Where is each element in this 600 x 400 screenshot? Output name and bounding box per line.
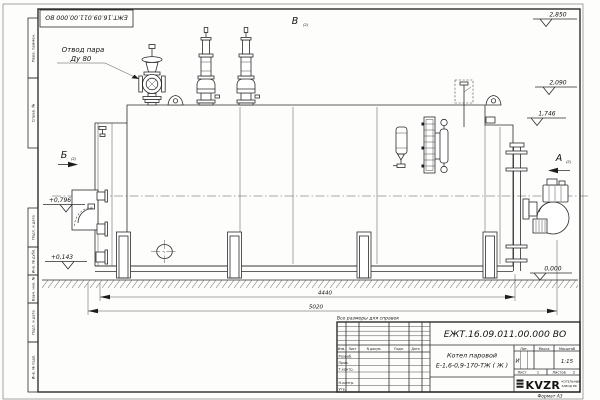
lifting-lug [486, 96, 501, 106]
row-nkontr: Н.контр. [339, 381, 355, 385]
title-doc-number: ЕЖТ.16.09.011.00.000 ВО [444, 329, 567, 340]
front-plate-fittings [96, 127, 108, 265]
col-sign: Подп. [394, 347, 404, 351]
margin-label-inv-dubl: Инв. № дубл. [32, 249, 36, 274]
view-arrow-a [548, 168, 558, 173]
row-tkontr: Т.контр. [338, 368, 354, 372]
sheets-label: Листов [552, 371, 565, 375]
lit-value: И [515, 359, 519, 365]
drum-step-stub [486, 117, 495, 123]
reference-note: Все размеры для справок [337, 316, 400, 322]
callout-leader-arrow [132, 75, 140, 79]
margin-label-vzam-inv: Взам. инв. № [32, 277, 36, 302]
row-razrab: Разраб. [339, 354, 353, 358]
view-label-a: А (2) [548, 153, 572, 173]
boiler-side-view [72, 28, 569, 279]
view-sheet-ref-a: (2) [566, 160, 572, 164]
logo-sub1: КОТЕЛЬНЫЙ [562, 379, 581, 384]
mass-header: Масса [539, 347, 550, 351]
burner-fan-unit [523, 179, 569, 234]
scale-value: 1:15 [561, 359, 574, 365]
sheet-num: 1 [537, 371, 539, 375]
margin-label-podp-data-1: Подп. и дата [32, 215, 36, 239]
view-arrow-b [68, 162, 78, 167]
margin-label-sprav-no: Справ. № [31, 104, 36, 123]
col-izm: Изм. [338, 347, 346, 351]
row-utv: Утв. [339, 388, 346, 392]
elevation-2850: 2,850 [533, 12, 577, 27]
manhole [151, 240, 178, 263]
lit-header: Лит. [520, 347, 528, 351]
format-note: Формат А3 [537, 394, 562, 400]
boiler-shell-outline [95, 105, 513, 266]
ground-line [42, 280, 578, 288]
sheets-num: 2 [573, 371, 575, 375]
product-model: Е-1,6-0,9-170-ТЖ ( Ж ) [436, 363, 508, 370]
steam-outlet-callout: Отвод пара Ду 80 [57, 46, 139, 79]
burner-front-door [72, 190, 98, 230]
logo-text: KVZR [526, 379, 561, 392]
scale-header: Масштаб [559, 347, 575, 351]
drawing-sheet: Перв. примен. Справ. № Подп. и дата Инв.… [0, 0, 600, 400]
water-level-gauge [422, 117, 449, 173]
boiler-general-view-drawing: Перв. примен. Справ. № Подп. и дата Инв.… [0, 0, 600, 400]
margin-label-podp-data-2: Подп. и дата [32, 310, 36, 334]
sample-cooler-vessel [393, 127, 407, 168]
view-letter-a: А [555, 153, 563, 164]
col-list: Лист [348, 347, 356, 351]
lifting-lug [168, 96, 183, 106]
view-label-b: Б (2) [58, 150, 78, 167]
elevation-0143-value: +0,143 [51, 254, 73, 261]
dimension-5020-value: 5020 [309, 305, 324, 311]
hidden-fitting [455, 80, 473, 127]
kvzr-logo: KVZR КОТЕЛЬНЫЙ ЗАВОД РФ [517, 379, 581, 393]
elevation-0143: +0,143 [45, 254, 87, 269]
elevation-1746: 1,746 [527, 111, 566, 126]
view-label-v: В (2) [292, 16, 309, 27]
col-doc: N докум. [367, 347, 382, 351]
elevation-0000: 0,000 [530, 266, 572, 281]
logo-sub2: ЗАВОД РФ [562, 384, 578, 388]
margin-label-perv-primen: Перв. примен. [31, 34, 36, 63]
safety-valve-2 [237, 28, 260, 106]
elevation-1746-value: 1,746 [538, 111, 555, 118]
col-date: Дата [411, 347, 419, 351]
elevation-2090-value: 2,090 [549, 80, 566, 87]
elevation-2090: 2,090 [535, 80, 577, 95]
safety-valve-1 [197, 28, 220, 106]
corner-stamp-doc-number: ЕЖТ.16.09.011.00.000 ВО [45, 14, 128, 21]
margin-column: Перв. примен. Справ. № Подп. и дата Инв.… [28, 18, 38, 392]
callout-line1: Отвод пара [62, 46, 105, 54]
view-letter-v: В [292, 16, 299, 27]
steam-stop-valve [139, 45, 165, 106]
elevation-0000-value: 0,000 [544, 266, 561, 273]
row-prov: Пров. [339, 361, 349, 365]
view-letter-b: Б [61, 150, 68, 161]
sheet-label: Лист [517, 371, 526, 375]
corner-stamp: ЕЖТ.16.09.011.00.000 ВО [40, 10, 133, 27]
view-sheet-ref-v: (2) [303, 23, 309, 27]
title-block: ЕЖТ.16.09.011.00.000 ВО Котел паровой Е-… [337, 322, 580, 392]
elevation-0796-value: +0,796 [49, 197, 71, 204]
product-name: Котел паровой [447, 352, 497, 360]
view-sheet-ref-b: (2) [71, 157, 77, 161]
dimension-4440-value: 4440 [318, 291, 333, 297]
callout-line2: Ду 80 [70, 55, 92, 63]
margin-label-inv-podl: Инв. № подл. [32, 355, 36, 380]
elevation-2850-value: 2,850 [549, 12, 566, 19]
